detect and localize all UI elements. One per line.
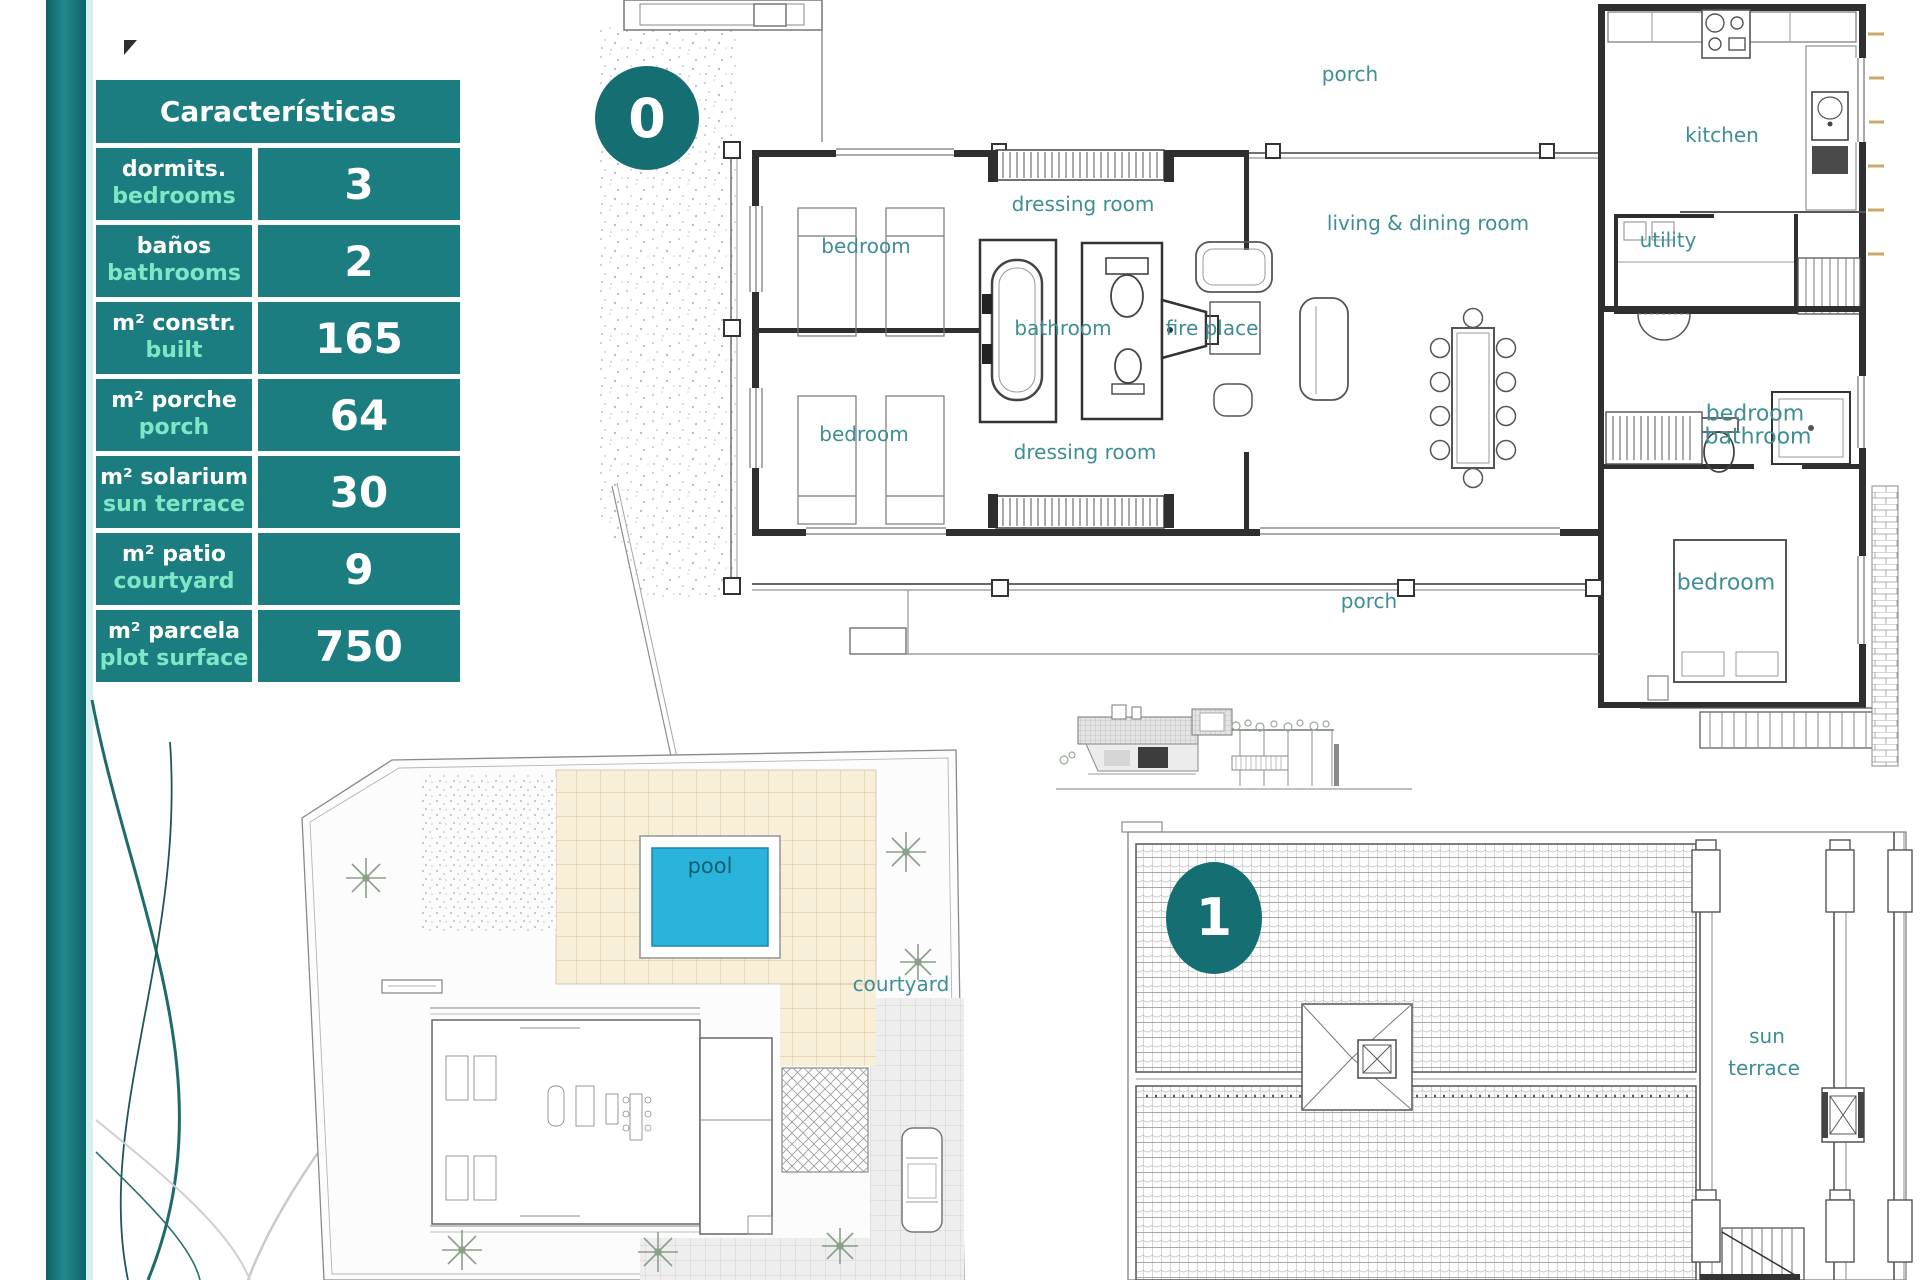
label-dressing-room-top: dressing room	[1012, 192, 1155, 216]
floor-plan-0	[600, 0, 1898, 788]
row-value-sun-terrace: 30	[258, 456, 460, 528]
row-label-courtyard: m² patio courtyard	[96, 533, 252, 605]
table-row: m² constr. built 165	[96, 302, 460, 374]
row-value-bedrooms: 3	[258, 148, 460, 220]
row-label-built: m² constr. built	[96, 302, 252, 374]
label-courtyard: courtyard	[853, 972, 950, 996]
floor-0-badge: 0	[595, 66, 699, 170]
label-bathroom-right: bathroom	[1705, 425, 1812, 450]
table-header: Características	[96, 80, 460, 143]
label-bedroom-bottom-left: bedroom	[819, 422, 908, 446]
row-value-bathrooms: 2	[258, 225, 460, 297]
row-value-porch: 64	[258, 379, 460, 451]
elevation-drawing	[1056, 705, 1412, 789]
label-fire-place: fire place	[1166, 316, 1259, 340]
label-terrace: terrace	[1728, 1056, 1800, 1080]
label-sun: sun	[1749, 1024, 1785, 1048]
label-porch-top: porch	[1322, 62, 1378, 86]
label-bedroom-top-left: bedroom	[821, 234, 910, 258]
row-value-built: 165	[258, 302, 460, 374]
row-label-porch: m² porche porch	[96, 379, 252, 451]
label-porch-bottom: porch	[1341, 589, 1397, 613]
table-row: dormits. bedrooms 3	[96, 148, 460, 220]
site-plan	[302, 750, 964, 1280]
characteristics-table: Características dormits. bedrooms 3 baño…	[96, 80, 460, 682]
label-kitchen: kitchen	[1685, 123, 1759, 147]
row-label-bedrooms: dormits. bedrooms	[96, 148, 252, 220]
row-value-plot-surface: 750	[258, 610, 460, 682]
table-row: m² solarium sun terrace 30	[96, 456, 460, 528]
row-value-courtyard: 9	[258, 533, 460, 605]
table-row: baños bathrooms 2	[96, 225, 460, 297]
label-bedroom-bottom-right: bedroom	[1677, 571, 1775, 596]
label-living-dining: living & dining room	[1327, 211, 1529, 235]
table-row: m² porche porch 64	[96, 379, 460, 451]
row-label-bathrooms: baños bathrooms	[96, 225, 252, 297]
label-utility: utility	[1640, 228, 1697, 252]
row-label-plot-surface: m² parcela plot surface	[96, 610, 252, 682]
row-label-sun-terrace: m² solarium sun terrace	[96, 456, 252, 528]
label-pool: pool	[688, 854, 733, 878]
floor-1-badge: 1	[1166, 862, 1262, 974]
label-bathroom-center: bathroom	[1014, 316, 1111, 340]
label-dressing-room-bottom: dressing room	[1014, 440, 1157, 464]
floor-plan-sheet: Características dormits. bedrooms 3 baño…	[0, 0, 1920, 1280]
table-row: m² parcela plot surface 750	[96, 610, 460, 682]
table-row: m² patio courtyard 9	[96, 533, 460, 605]
label-bedroom-right: bedroom	[1706, 402, 1804, 427]
